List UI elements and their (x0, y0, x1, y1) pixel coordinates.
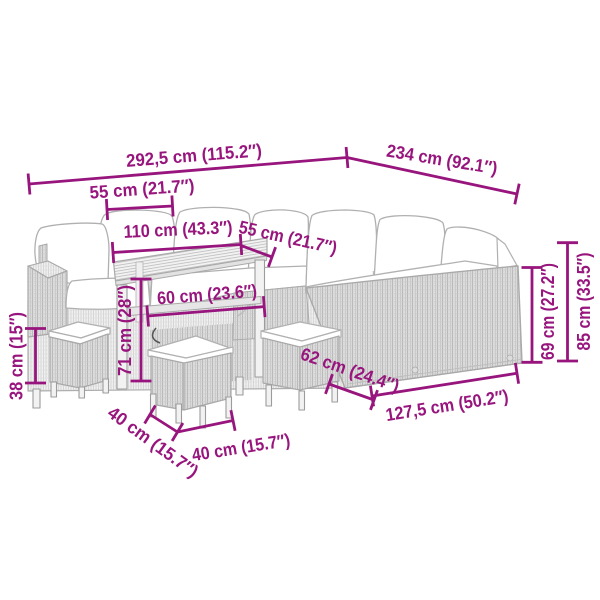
svg-text:69 cm (27.2″): 69 cm (27.2″) (538, 263, 558, 360)
svg-text:85 cm (33.5″): 85 cm (33.5″) (574, 252, 594, 350)
svg-text:71 cm (28″): 71 cm (28″) (115, 285, 135, 376)
svg-text:38 cm (15″): 38 cm (15″) (7, 312, 27, 400)
